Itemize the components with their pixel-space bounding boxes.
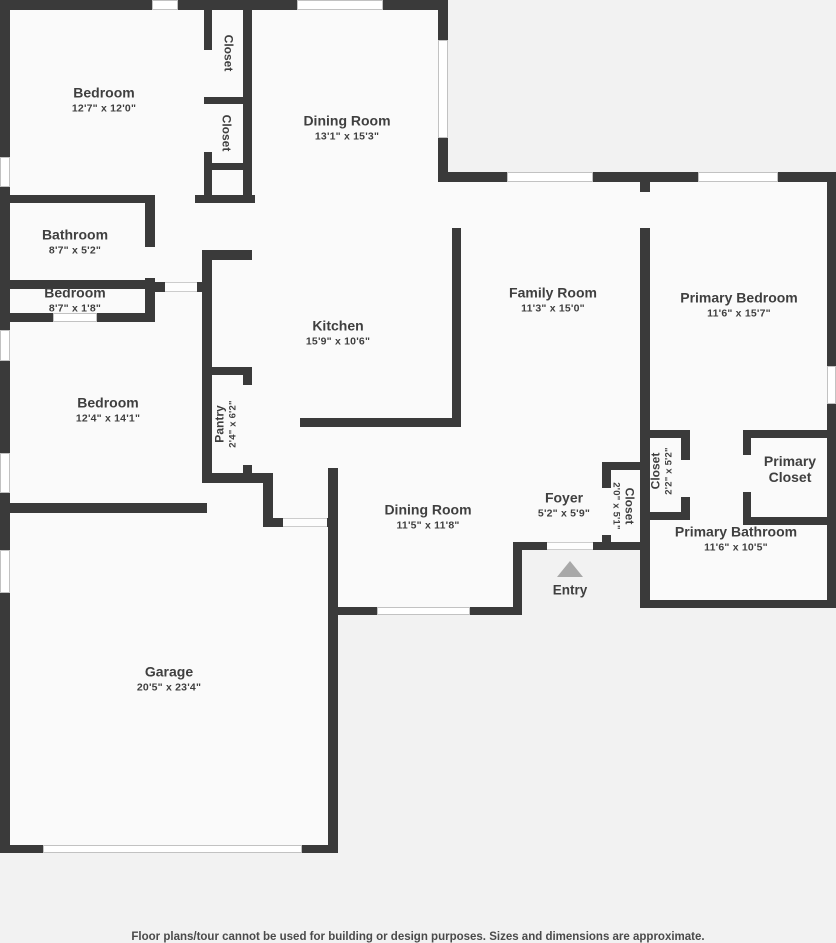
wall-segment [243,10,252,203]
room-dims: 2'4" x 6'2" [228,400,239,447]
wall-opening [165,282,197,292]
wall-segment [204,163,252,170]
room-label-foyer: Foyer 5'2" x 5'9" [538,490,590,519]
room-label-dining-room-top: Dining Room 13'1" x 15'3" [303,113,390,142]
room-label-pantry: Pantry 2'4" x 6'2" [213,400,238,447]
room-dims: 15'9" x 10'6" [306,336,370,348]
entry-door-opening [547,542,593,550]
room-name: Bedroom [44,285,105,300]
window-marker [377,607,470,615]
room-dims: 11'6" x 15'7" [680,308,797,320]
floor-area [438,172,836,550]
room-name: Garage [137,664,201,679]
garage-vehicle-door [43,845,302,853]
room-name: Closet [649,447,662,494]
room-label-closet-foyer: Closet 2'0" x 5'1" [610,482,635,529]
room-name: Kitchen [306,318,370,333]
window-marker [0,550,10,593]
window-marker [698,172,778,182]
room-name: Primary Closet [751,453,829,485]
wall-segment [204,97,252,104]
wall-segment [0,503,207,513]
room-name: Dining Room [384,502,471,517]
entry-text: Entry [553,584,588,599]
room-dims: 11'5" x 11'8" [384,520,471,532]
room-dims: 12'7" x 12'0" [72,103,136,115]
room-dims: 8'7" x 5'2" [42,245,108,257]
room-label-closet-top-1: Closet [221,35,234,72]
wall-segment [640,600,836,608]
door-opening [640,192,650,228]
wall-segment [452,228,461,427]
wall-segment [640,512,690,520]
disclaimer-text: Floor plans/tour cannot be used for buil… [0,931,836,943]
room-name: Dining Room [303,113,390,128]
room-dims: 2'2" x 5'2" [664,447,675,494]
room-dims: 11'6" x 10'5" [675,542,797,554]
wall-segment [0,195,155,203]
room-label-garage: Garage 20'5" x 23'4" [137,664,201,693]
door-opening [204,50,212,97]
floor-area [448,550,522,607]
window-marker [0,453,10,493]
room-label-bedroom-left: Bedroom 12'4" x 14'1" [76,395,140,424]
wall-segment [202,250,252,260]
room-label-family-room: Family Room 11'3" x 15'0" [509,285,597,314]
room-name: Foyer [538,490,590,505]
window-marker [438,40,448,138]
floor-plan: Bedroom 12'7" x 12'0" Closet Closet Dini… [0,0,836,943]
window-marker [297,0,383,10]
window-marker [507,172,593,182]
wall-segment [195,195,255,203]
wall-segment [300,418,461,427]
room-dims: 5'2" x 5'9" [538,508,590,520]
wall-segment [0,0,10,853]
window-marker [152,0,178,10]
room-name: Primary Bathroom [675,524,797,539]
wall-segment [743,430,836,438]
room-name: Pantry [213,400,226,447]
room-label-closet-top-2: Closet [219,115,232,152]
garage-door-opening [283,518,327,527]
entry-arrow-icon [557,561,583,577]
window-marker [827,366,836,404]
room-label-closet-hall: Closet 2'2" x 5'2" [649,447,674,494]
window-marker [0,330,10,361]
room-label-bathroom: Bathroom 8'7" x 5'2" [42,227,108,256]
wall-segment [602,462,650,470]
door-opening [743,455,751,492]
room-name: Bedroom [76,395,140,410]
room-name: Bathroom [42,227,108,242]
room-label-bedroom-mid: Bedroom 8'7" x 1'8" [44,285,105,314]
entry-label: Entry [553,584,588,599]
door-opening [243,385,252,465]
room-name: Closet [219,115,232,152]
door-opening [145,247,155,278]
wall-segment [513,542,522,615]
wall-segment [602,542,650,550]
room-dims: 8'7" x 1'8" [44,303,105,315]
room-label-primary-closet: Primary Closet [751,453,829,485]
window-marker [0,157,10,187]
room-dims: 11'3" x 15'0" [509,303,597,315]
room-label-kitchen: Kitchen 15'9" x 10'6" [306,318,370,347]
room-dims: 20'5" x 23'4" [137,682,201,694]
room-dims: 13'1" x 15'3" [303,131,390,143]
room-label-dining-room-lower: Dining Room 11'5" x 11'8" [384,502,471,531]
room-name: Bedroom [72,85,136,100]
room-dims: 2'0" x 5'1" [610,482,621,529]
room-name: Closet [622,482,635,529]
door-opening [204,104,212,152]
room-name: Family Room [509,285,597,300]
door-opening [681,460,690,497]
room-label-primary-bedroom: Primary Bedroom 11'6" x 15'7" [680,290,797,319]
room-name: Primary Bedroom [680,290,797,305]
wall-segment [640,430,690,438]
room-label-bedroom-top: Bedroom 12'7" x 12'0" [72,85,136,114]
room-dims: 12'4" x 14'1" [76,413,140,425]
room-name: Closet [221,35,234,72]
room-label-primary-bathroom: Primary Bathroom 11'6" x 10'5" [675,524,797,553]
